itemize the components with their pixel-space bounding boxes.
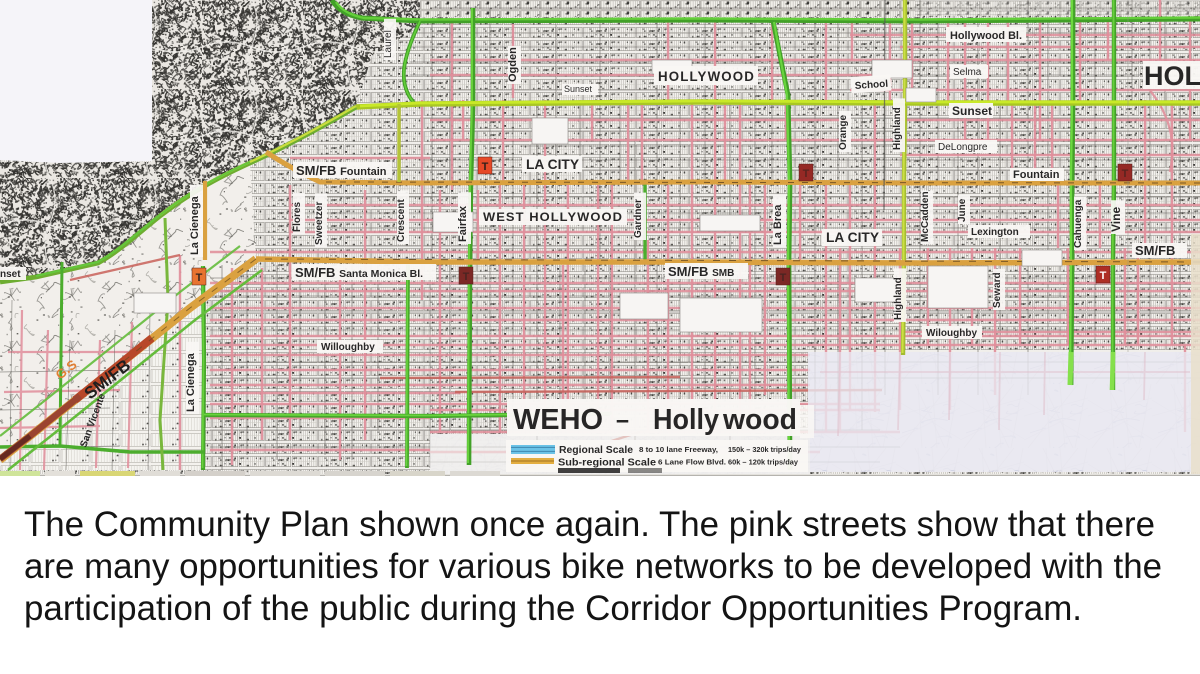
svg-text:participation of the public du: participation of the public during the C… — [24, 589, 1082, 628]
svg-text:are many opportunities for var: are many opportunities for various bike … — [24, 547, 1162, 586]
svg-text:The Community Plan shown once: The Community Plan shown once again. The… — [24, 505, 1155, 544]
